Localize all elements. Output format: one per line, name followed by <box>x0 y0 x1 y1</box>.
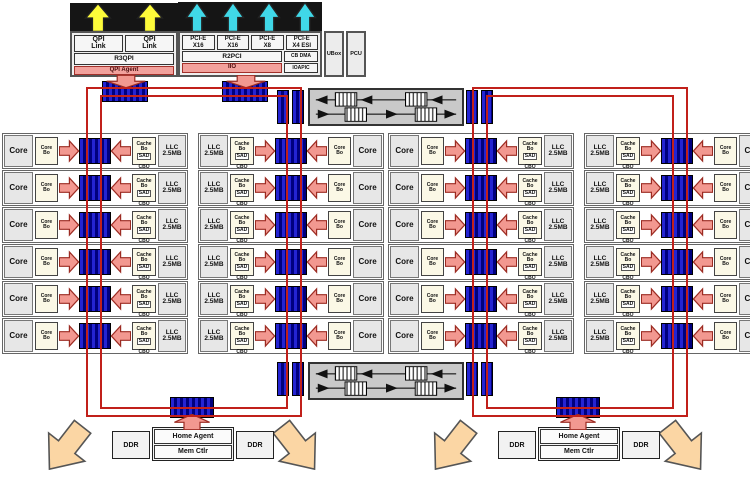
pcie-ports-row: PCI-EX16 PCI-EX16 PCI-EX8 PCI-EX4 ESI <box>182 35 318 50</box>
core-llc-tile: LLC2.5MBCacheBoSADCBOCoreBoCore <box>584 318 750 354</box>
ring-stop <box>465 138 497 164</box>
core-bo-box: CoreBo <box>714 322 737 350</box>
sad-label: SAD <box>621 227 636 234</box>
ring-stop <box>661 249 693 275</box>
home-agent-to-ring-arrow-icon <box>558 414 598 430</box>
sad-label: SAD <box>523 301 538 308</box>
core-bo-box: CoreBo <box>421 174 444 202</box>
cache-bo-box: CacheBoSADCBO <box>518 248 542 276</box>
cache-bo-box: CacheBoSADCBO <box>132 174 156 202</box>
sad-label: SAD <box>235 301 250 308</box>
ring-arrow-left-icon <box>497 176 517 200</box>
cache-bo-box: CacheBoSADCBO <box>132 137 156 165</box>
r3qpi-box: R3QPI <box>74 53 174 65</box>
cache-bo-box: CacheBoSADCBO <box>230 285 254 313</box>
ring-stop <box>275 286 307 312</box>
pcie-port-box: PCI-EX16 <box>182 35 215 50</box>
llc-box: LLC2.5MB <box>586 209 614 241</box>
qpi-agent-strip: QPI Agent <box>74 66 174 75</box>
ring-arrow-left-icon <box>111 213 131 237</box>
mem-ctlr-label: Mem Ctlr <box>154 445 232 460</box>
pcu-box: PCU <box>346 31 366 77</box>
pcie-lane-arrow-icon <box>185 2 209 32</box>
cbo-label: CBO <box>524 350 535 355</box>
cache-bo-box: CacheBoSADCBO <box>132 248 156 276</box>
ring-arrow-right-icon <box>255 176 275 200</box>
ring-arrow-left-icon <box>693 176 713 200</box>
sad-label: SAD <box>235 227 250 234</box>
core-box: Core <box>739 172 750 204</box>
ring-arrow-left-icon <box>497 139 517 163</box>
ring-arrow-left-icon <box>111 139 131 163</box>
ring-stop <box>275 212 307 238</box>
ring-arrow-right-icon <box>59 213 79 237</box>
ring-stop <box>465 286 497 312</box>
ring-arrow-left-icon <box>307 250 327 274</box>
sad-label: SAD <box>621 301 636 308</box>
core-box: Core <box>390 283 419 315</box>
ddr-traffic-arrow-icon <box>414 410 489 477</box>
core-bo-box: CoreBo <box>35 285 58 313</box>
ring-arrow-right-icon <box>641 324 661 348</box>
cbo-label: CBO <box>138 350 149 355</box>
core-box: Core <box>739 209 750 241</box>
ring-arrow-right-icon <box>59 324 79 348</box>
ddr-traffic-arrow-icon <box>28 410 103 477</box>
core-bo-box: CoreBo <box>35 322 58 350</box>
sad-label: SAD <box>523 338 538 345</box>
sad-label: SAD <box>137 190 152 197</box>
core-llc-tile: CoreCoreBoCacheBoSADCBOLLC2.5MB <box>2 281 188 317</box>
core-bo-box: CoreBo <box>35 137 58 165</box>
ring-arrow-left-icon <box>111 250 131 274</box>
llc-box: LLC2.5MB <box>544 209 572 241</box>
sad-label: SAD <box>523 227 538 234</box>
ring-arrow-left-icon <box>693 287 713 311</box>
switch-internals-icon <box>310 90 462 124</box>
qpi-link-arrow-icon <box>84 3 112 32</box>
ring-buffered-switch-bottom <box>308 362 464 400</box>
core-llc-tile: CoreCoreBoCacheBoSADCBOLLC2.5MB <box>388 281 574 317</box>
llc-box: LLC2.5MB <box>200 172 228 204</box>
ring-arrow-right-icon <box>255 213 275 237</box>
llc-box: LLC2.5MB <box>544 172 572 204</box>
sad-label: SAD <box>523 153 538 160</box>
core-llc-tile: CoreCoreBoCacheBoSADCBOLLC2.5MB <box>388 170 574 206</box>
core-box: Core <box>739 135 750 167</box>
core-bo-box: CoreBo <box>421 211 444 239</box>
cache-bo-box: CacheBoSADCBO <box>616 137 640 165</box>
ring-arrow-left-icon <box>497 213 517 237</box>
core-bo-box: CoreBo <box>35 248 58 276</box>
core-bo-box: CoreBo <box>328 137 351 165</box>
ring-stop <box>661 175 693 201</box>
sad-label: SAD <box>137 264 152 271</box>
core-llc-tile: CoreCoreBoCacheBoSADCBOLLC2.5MB <box>388 318 574 354</box>
ring-stop-switch <box>292 362 304 396</box>
core-llc-tile: CoreCoreBoCacheBoSADCBOLLC2.5MB <box>2 244 188 280</box>
ring-arrow-left-icon <box>307 139 327 163</box>
llc-box: LLC2.5MB <box>586 172 614 204</box>
ring-arrow-right-icon <box>255 324 275 348</box>
sad-label: SAD <box>235 153 250 160</box>
qpi-link-arrow-icon <box>136 3 164 32</box>
ring-arrow-right-icon <box>641 176 661 200</box>
cache-bo-box: CacheBoSADCBO <box>518 322 542 350</box>
core-bo-box: CoreBo <box>714 174 737 202</box>
iio-agent-strip: IIO <box>182 63 282 73</box>
qpi-link-label: Link <box>91 43 105 50</box>
core-llc-tile: LLC2.5MBCacheBoSADCBOCoreBoCore <box>198 170 384 206</box>
cb-dma-box: CB DMA <box>284 51 318 62</box>
ring-stop <box>275 323 307 349</box>
qpi-link-label: Link <box>142 43 156 50</box>
qpi-link-label: QPI <box>92 36 104 43</box>
ring-stop <box>79 249 111 275</box>
cache-bo-box: CacheBoSADCBO <box>616 248 640 276</box>
ring-stop-switch <box>466 90 478 124</box>
ring-arrow-left-icon <box>307 324 327 348</box>
cache-bo-box: CacheBoSADCBO <box>518 137 542 165</box>
ring-stop <box>79 286 111 312</box>
qpi-link-label: QPI <box>143 36 155 43</box>
llc-box: LLC2.5MB <box>158 320 186 352</box>
core-llc-tile: CoreCoreBoCacheBoSADCBOLLC2.5MB <box>388 244 574 280</box>
llc-box: LLC2.5MB <box>200 283 228 315</box>
ddr-channel-box: DDR <box>112 431 150 459</box>
core-box: Core <box>353 283 382 315</box>
core-llc-tile: CoreCoreBoCacheBoSADCBOLLC2.5MB <box>2 170 188 206</box>
cache-bo-box: CacheBoSADCBO <box>132 211 156 239</box>
core-bo-box: CoreBo <box>328 211 351 239</box>
core-bo-box: CoreBo <box>714 285 737 313</box>
cache-bo-box: CacheBoSADCBO <box>616 285 640 313</box>
core-box: Core <box>4 246 33 278</box>
sad-label: SAD <box>235 338 250 345</box>
cbo-label: CBO <box>622 350 633 355</box>
core-bo-box: CoreBo <box>35 211 58 239</box>
llc-box: LLC2.5MB <box>200 135 228 167</box>
core-box: Core <box>353 135 382 167</box>
ring-stop-switch <box>277 362 289 396</box>
pcie-lane-arrow-icon <box>257 2 281 32</box>
core-bo-box: CoreBo <box>328 322 351 350</box>
core-bo-box: CoreBo <box>328 285 351 313</box>
core-box: Core <box>353 320 382 352</box>
core-bo-box: CoreBo <box>421 285 444 313</box>
ring-arrow-left-icon <box>693 213 713 237</box>
ring-stop-switch <box>277 90 289 124</box>
sad-label: SAD <box>137 227 152 234</box>
core-box: Core <box>739 320 750 352</box>
core-llc-tile: LLC2.5MBCacheBoSADCBOCoreBoCore <box>198 281 384 317</box>
core-box: Core <box>390 172 419 204</box>
ring-arrow-right-icon <box>59 250 79 274</box>
core-box: Core <box>739 246 750 278</box>
qpi-link-box: QPILink <box>125 35 174 52</box>
core-llc-tile: LLC2.5MBCacheBoSADCBOCoreBoCore <box>198 318 384 354</box>
cache-bo-box: CacheBoSADCBO <box>230 211 254 239</box>
llc-box: LLC2.5MB <box>158 283 186 315</box>
ring-arrow-right-icon <box>641 287 661 311</box>
ring-arrow-right-icon <box>59 176 79 200</box>
ring-stop-switch <box>481 362 493 396</box>
core-box: Core <box>390 209 419 241</box>
ring-arrow-left-icon <box>307 287 327 311</box>
llc-box: LLC2.5MB <box>586 246 614 278</box>
ring-arrow-right-icon <box>59 139 79 163</box>
core-bo-box: CoreBo <box>35 174 58 202</box>
ring-arrow-right-icon <box>255 139 275 163</box>
llc-box: LLC2.5MB <box>200 246 228 278</box>
core-box: Core <box>390 135 419 167</box>
ring-arrow-left-icon <box>497 250 517 274</box>
pcie-iio-unit: PCI-EX16 PCI-EX16 PCI-EX8 PCI-EX4 ESI R2… <box>178 31 322 77</box>
ring-stop <box>79 175 111 201</box>
ring-arrow-left-icon <box>693 139 713 163</box>
llc-box: LLC2.5MB <box>158 135 186 167</box>
cache-bo-box: CacheBoSADCBO <box>132 322 156 350</box>
qpi-unit: QPILink QPILink R3QPI QPI Agent <box>70 31 178 77</box>
mem-ctlr-label: Mem Ctlr <box>540 445 618 460</box>
qpi-agent-to-ring-arrow-icon <box>104 75 148 88</box>
cache-bo-box: CacheBoSADCBO <box>518 211 542 239</box>
home-agent-label: Home Agent <box>540 429 618 444</box>
llc-box: LLC2.5MB <box>158 246 186 278</box>
home-agent-mem-ctlr-box: Home Agent Mem Ctlr <box>538 427 620 461</box>
ring-stop-switch <box>466 362 478 396</box>
ring-arrow-left-icon <box>693 250 713 274</box>
sad-label: SAD <box>137 301 152 308</box>
ring-arrow-right-icon <box>641 139 661 163</box>
core-llc-tile: CoreCoreBoCacheBoSADCBOLLC2.5MB <box>388 133 574 169</box>
pcie-port-box: PCI-EX8 <box>251 35 284 50</box>
core-bo-box: CoreBo <box>714 211 737 239</box>
core-box: Core <box>4 283 33 315</box>
ring-stop <box>465 249 497 275</box>
sad-label: SAD <box>235 190 250 197</box>
core-box: Core <box>353 209 382 241</box>
ring-stop-switch <box>292 90 304 124</box>
cache-bo-box: CacheBoSADCBO <box>518 285 542 313</box>
llc-box: LLC2.5MB <box>544 320 572 352</box>
core-llc-tile: CoreCoreBoCacheBoSADCBOLLC2.5MB <box>388 207 574 243</box>
llc-box: LLC2.5MB <box>544 246 572 278</box>
core-bo-box: CoreBo <box>421 248 444 276</box>
llc-box: LLC2.5MB <box>586 135 614 167</box>
core-llc-tile: LLC2.5MBCacheBoSADCBOCoreBoCore <box>198 133 384 169</box>
core-llc-tile: LLC2.5MBCacheBoSADCBOCoreBoCore <box>584 207 750 243</box>
core-llc-tile: CoreCoreBoCacheBoSADCBOLLC2.5MB <box>2 133 188 169</box>
ring-arrow-left-icon <box>307 176 327 200</box>
core-box: Core <box>4 209 33 241</box>
ring-stop <box>79 138 111 164</box>
switch-internals-icon <box>310 364 462 398</box>
ring-arrow-right-icon <box>445 139 465 163</box>
ring-arrow-right-icon <box>59 287 79 311</box>
cache-bo-box: CacheBoSADCBO <box>616 211 640 239</box>
ring-stop <box>661 212 693 238</box>
cbo-label: CBO <box>236 350 247 355</box>
llc-box: LLC2.5MB <box>200 209 228 241</box>
home-agent-mem-ctlr-box: Home Agent Mem Ctlr <box>152 427 234 461</box>
ring-arrow-left-icon <box>497 287 517 311</box>
ring-arrow-left-icon <box>497 324 517 348</box>
ring-stop <box>275 175 307 201</box>
ring-arrow-left-icon <box>693 324 713 348</box>
ring-arrow-right-icon <box>641 213 661 237</box>
core-llc-tile: LLC2.5MBCacheBoSADCBOCoreBoCore <box>584 170 750 206</box>
cache-bo-box: CacheBoSADCBO <box>230 174 254 202</box>
pcie-port-box: PCI-EX4 ESI <box>286 35 319 50</box>
ring-stop <box>275 249 307 275</box>
sad-label: SAD <box>621 338 636 345</box>
core-box: Core <box>390 246 419 278</box>
ring-arrow-left-icon <box>111 287 131 311</box>
core-llc-tile: LLC2.5MBCacheBoSADCBOCoreBoCore <box>584 281 750 317</box>
core-llc-tile: CoreCoreBoCacheBoSADCBOLLC2.5MB <box>2 207 188 243</box>
iio-to-ring-arrow-icon <box>224 75 268 88</box>
ring-arrow-right-icon <box>641 250 661 274</box>
cache-bo-box: CacheBoSADCBO <box>616 174 640 202</box>
ring-arrow-right-icon <box>255 250 275 274</box>
ring-arrow-right-icon <box>445 250 465 274</box>
ring-stop <box>275 138 307 164</box>
ioapic-box: IOAPIC <box>284 63 318 74</box>
sad-label: SAD <box>621 190 636 197</box>
llc-box: LLC2.5MB <box>586 283 614 315</box>
ring-stop-switch <box>481 90 493 124</box>
core-bo-box: CoreBo <box>328 174 351 202</box>
ring-arrow-right-icon <box>445 324 465 348</box>
sad-label: SAD <box>621 153 636 160</box>
core-box: Core <box>4 320 33 352</box>
qpi-link-box: QPILink <box>74 35 123 52</box>
llc-box: LLC2.5MB <box>586 320 614 352</box>
ring-stop <box>79 323 111 349</box>
core-llc-tile: LLC2.5MBCacheBoSADCBOCoreBoCore <box>198 207 384 243</box>
llc-box: LLC2.5MB <box>200 320 228 352</box>
core-bo-box: CoreBo <box>328 248 351 276</box>
home-agent-to-ring-arrow-icon <box>172 414 212 430</box>
pcie-lane-arrow-icon <box>293 2 317 32</box>
core-box: Core <box>4 172 33 204</box>
core-box: Core <box>4 135 33 167</box>
ring-arrow-right-icon <box>445 176 465 200</box>
ring-buffered-switch-top <box>308 88 464 126</box>
r2pci-box: R2PCI <box>182 51 282 62</box>
sad-label: SAD <box>235 264 250 271</box>
ubox-box: UBox <box>324 31 344 77</box>
ring-arrow-left-icon <box>307 213 327 237</box>
core-llc-tile: LLC2.5MBCacheBoSADCBOCoreBoCore <box>198 244 384 280</box>
ring-stop <box>465 212 497 238</box>
ddr-channel-box: DDR <box>498 431 536 459</box>
ring-arrow-right-icon <box>445 287 465 311</box>
llc-box: LLC2.5MB <box>158 172 186 204</box>
ring-stop <box>661 323 693 349</box>
xeon-ring-architecture-diagram: QPILink QPILink R3QPI QPI Agent PCI-EX16… <box>0 0 750 477</box>
core-bo-box: CoreBo <box>714 248 737 276</box>
llc-box: LLC2.5MB <box>544 283 572 315</box>
sad-label: SAD <box>137 153 152 160</box>
core-bo-box: CoreBo <box>421 322 444 350</box>
llc-box: LLC2.5MB <box>544 135 572 167</box>
pcie-port-box: PCI-EX16 <box>217 35 250 50</box>
core-bo-box: CoreBo <box>421 137 444 165</box>
ring-stop <box>465 323 497 349</box>
core-box: Core <box>739 283 750 315</box>
sad-label: SAD <box>523 264 538 271</box>
llc-box: LLC2.5MB <box>158 209 186 241</box>
ring-stop <box>79 212 111 238</box>
ring-stop <box>661 286 693 312</box>
ddr-channel-box: DDR <box>236 431 274 459</box>
core-box: Core <box>353 172 382 204</box>
ring-stop <box>465 175 497 201</box>
ddr-channel-box: DDR <box>622 431 660 459</box>
pcie-lane-arrow-icon <box>221 2 245 32</box>
sad-label: SAD <box>137 338 152 345</box>
ring-arrow-right-icon <box>255 287 275 311</box>
cache-bo-box: CacheBoSADCBO <box>518 174 542 202</box>
sad-label: SAD <box>523 190 538 197</box>
core-box: Core <box>390 320 419 352</box>
core-llc-tile: LLC2.5MBCacheBoSADCBOCoreBoCore <box>584 244 750 280</box>
ring-arrow-left-icon <box>111 324 131 348</box>
cache-bo-box: CacheBoSADCBO <box>616 322 640 350</box>
core-llc-tile: CoreCoreBoCacheBoSADCBOLLC2.5MB <box>2 318 188 354</box>
core-llc-tile: LLC2.5MBCacheBoSADCBOCoreBoCore <box>584 133 750 169</box>
qpi-links-row: QPILink QPILink <box>74 35 174 52</box>
ring-stop <box>661 138 693 164</box>
core-bo-box: CoreBo <box>714 137 737 165</box>
cache-bo-box: CacheBoSADCBO <box>230 137 254 165</box>
cache-bo-box: CacheBoSADCBO <box>230 248 254 276</box>
cache-bo-box: CacheBoSADCBO <box>230 322 254 350</box>
home-agent-label: Home Agent <box>154 429 232 444</box>
ring-arrow-left-icon <box>111 176 131 200</box>
sad-label: SAD <box>621 264 636 271</box>
cache-bo-box: CacheBoSADCBO <box>132 285 156 313</box>
core-box: Core <box>353 246 382 278</box>
ring-arrow-right-icon <box>445 213 465 237</box>
